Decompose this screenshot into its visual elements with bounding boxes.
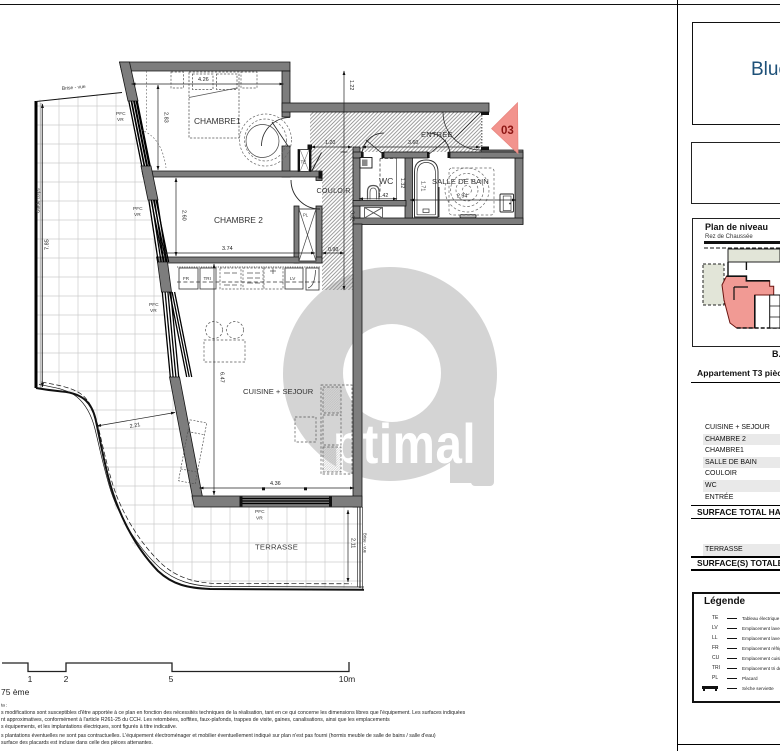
svg-text:1.32: 1.32 (399, 178, 405, 188)
svg-text:Garde corps: Garde corps (36, 187, 41, 213)
svg-text:FR: FR (183, 276, 190, 281)
svg-text:VR: VR (134, 212, 141, 218)
svg-text:s plantations éventuelles ne s: s plantations éventuelles ne sont pas co… (1, 733, 436, 739)
svg-text:CHAMBRE 2: CHAMBRE 2 (214, 215, 263, 225)
svg-text:VR: VR (117, 117, 124, 123)
svg-text:COULOIR: COULOIR (317, 186, 351, 195)
svg-text:Brise - vue: Brise - vue (62, 84, 87, 92)
svg-text:CUISINE + SEJOUR: CUISINE + SEJOUR (243, 387, 314, 396)
svg-text:LV: LV (290, 276, 296, 281)
svg-text:SALLE DE BAIN: SALLE DE BAIN (432, 177, 489, 186)
svg-text:4.26: 4.26 (198, 77, 209, 83)
svg-text:s modifications sont susceptib: s modifications sont susceptibles d'être… (1, 710, 466, 716)
svg-text:7.85: 7.85 (45, 239, 51, 250)
svg-text:TERRASSE: TERRASSE (255, 543, 298, 552)
svg-text:TRI: TRI (204, 276, 211, 281)
svg-text:1.22: 1.22 (348, 80, 354, 90)
svg-text:0.90: 0.90 (328, 247, 338, 253)
svg-text:VR: VR (150, 308, 157, 314)
svg-text:1.20: 1.20 (325, 140, 335, 146)
svg-text:2.83: 2.83 (163, 112, 169, 123)
svg-text:2.60: 2.60 (181, 210, 187, 221)
svg-text:2.11: 2.11 (350, 538, 356, 548)
svg-text:3.60: 3.60 (408, 140, 418, 146)
svg-text:PFC: PFC (149, 302, 159, 308)
svg-text:PL: PL (303, 213, 309, 218)
svg-text:10m: 10m (339, 674, 356, 684)
svg-text:WC: WC (379, 176, 393, 186)
svg-text:surface des placards est inclu: surface des placards est incluse dans ce… (1, 740, 153, 746)
svg-text:2.94: 2.94 (457, 194, 467, 200)
svg-text:Brise - vue: Brise - vue (363, 533, 368, 554)
svg-text:1: 1 (28, 674, 33, 684)
svg-text:ta :: ta : (1, 703, 7, 708)
svg-text:TE: TE (301, 160, 307, 165)
svg-text:s équipements, et les implanta: s équipements, et les implantations élec… (1, 724, 177, 730)
svg-text:VR: VR (256, 516, 263, 522)
svg-text:CHAMBRE1: CHAMBRE1 (194, 116, 241, 126)
svg-text:1.42: 1.42 (378, 193, 388, 199)
svg-text:2: 2 (64, 674, 69, 684)
svg-text:PFC: PFC (255, 509, 265, 515)
svg-text:3.82: 3.82 (349, 211, 355, 221)
svg-text:1.71: 1.71 (420, 181, 426, 191)
svg-text:6.47: 6.47 (219, 372, 225, 383)
svg-text:PFC: PFC (116, 111, 126, 117)
svg-text:4.36: 4.36 (270, 481, 281, 487)
svg-text:5: 5 (169, 674, 174, 684)
svg-text:PFC: PFC (133, 206, 143, 212)
svg-text:03: 03 (501, 125, 514, 137)
svg-text:nt approximatives, conformémen: nt approximatives, conformément à l'arti… (1, 717, 390, 723)
svg-text:75 ème: 75 ème (1, 687, 30, 697)
svg-text:3.74: 3.74 (222, 246, 233, 252)
